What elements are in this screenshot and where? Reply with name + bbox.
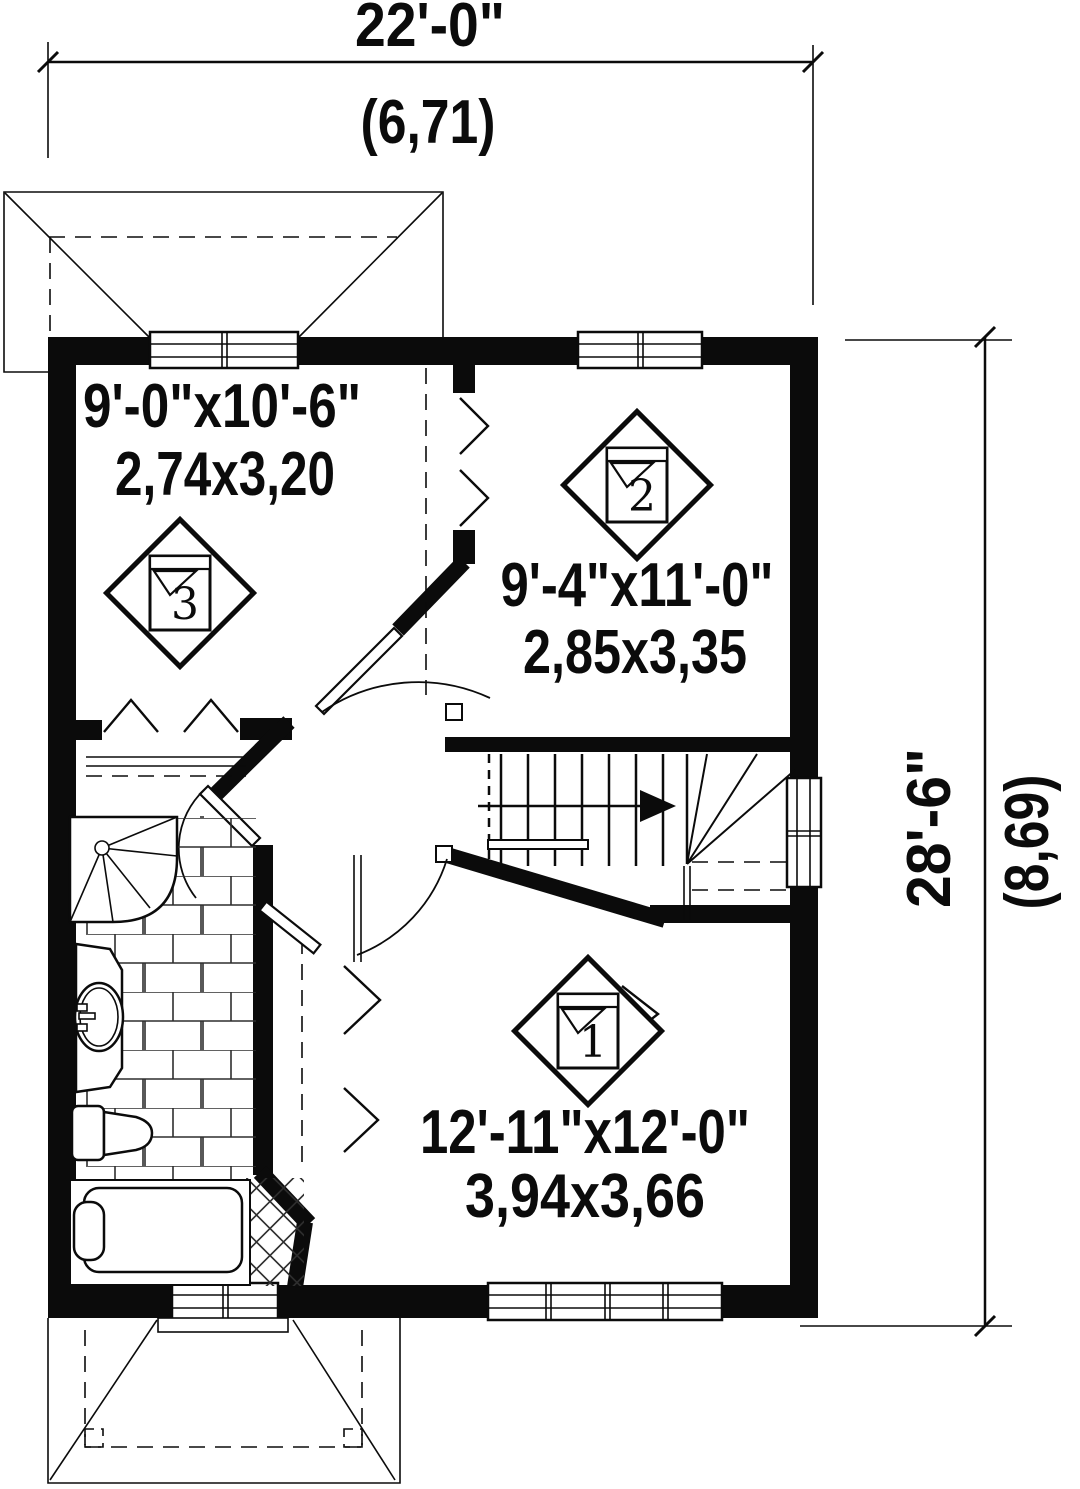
hall-closet-wall-left (76, 720, 102, 740)
stair-bottom-wall (650, 905, 790, 923)
top-dimension-imperial: 22'-0" (355, 0, 505, 60)
staircase (436, 704, 795, 920)
bedroom1-label-metric: 3,94x3,66 (465, 1162, 705, 1231)
shower (70, 817, 177, 922)
window-bedroom2 (578, 332, 702, 368)
closet-wall-stub-top (453, 365, 475, 393)
top-dimension-metric: (6,71) (361, 88, 496, 157)
porch-hip-right (293, 1320, 395, 1480)
hall-closet-chevrons (104, 700, 238, 732)
porch-hip-left (50, 1320, 157, 1480)
stair-landing-dashed (692, 862, 788, 890)
window-bedroom3 (150, 332, 298, 368)
linen-closet-chevrons (344, 966, 380, 1152)
stair-handrail (488, 840, 588, 849)
bathtub (70, 1180, 250, 1285)
bedroom2-label-metric: 2,85x3,35 (523, 618, 747, 687)
bedroom2-door-leaf (316, 628, 402, 714)
floor-plan-page: 22'-0" (6,71) 28'-6" (8,69) (0, 0, 1080, 1489)
room1-doorway-jamb (354, 855, 361, 962)
marker-page-header (607, 448, 667, 461)
stair-winder-treads (687, 754, 795, 864)
floor-plan-drawing: 22'-0" (6,71) 28'-6" (8,69) (0, 0, 1080, 1489)
marker-number: 3 (171, 579, 199, 630)
bedroom3-label-imperial: 9'-0"x10'-6" (83, 372, 361, 441)
hall-diagonal-wall-ne (398, 562, 464, 630)
porch-post-right (344, 1429, 362, 1447)
bedroom1-label-imperial: 12'-11"x12'-0" (420, 1098, 750, 1167)
right-dimension: 28'-6" (8,69) (800, 327, 1062, 1336)
right-dimension-metric: (8,69) (993, 775, 1062, 910)
marker-page-header (150, 556, 210, 569)
window-bedroom1 (488, 1283, 722, 1320)
top-dimension: 22'-0" (6,71) (38, 0, 823, 305)
room-marker-3: 3 (106, 519, 253, 666)
window-bathroom (172, 1283, 278, 1320)
porch-roof-hip-right (298, 193, 442, 338)
stair-direction-arrow (478, 790, 676, 822)
bedroom2-closet-chevrons (460, 398, 488, 526)
bedroom3-label-metric: 2,74x3,20 (115, 440, 335, 509)
right-dimension-imperial: 28'-6" (895, 748, 964, 908)
bedroom1-door-swing (357, 859, 447, 955)
lower-porch (48, 1318, 400, 1483)
marker-number: 2 (628, 471, 656, 522)
marker-number: 1 (579, 1017, 607, 1068)
stair-newel-post-bottom (436, 846, 452, 862)
tub-surround-tiles (246, 1178, 304, 1286)
porch-roof-hip-left (5, 193, 152, 340)
stair-top-wall (445, 737, 790, 752)
porch-outline (48, 1318, 400, 1483)
marker-page-header (558, 994, 618, 1007)
stair-newel-post-top (446, 704, 462, 720)
vanity-sink (75, 944, 123, 1092)
porch-post-left (85, 1429, 103, 1447)
porch-step (158, 1318, 288, 1332)
hall-closet-shelf-lines (86, 757, 246, 766)
room-marker-1: 1 (514, 957, 661, 1104)
window-stair-landing (787, 778, 821, 887)
room-marker-2: 2 (563, 411, 710, 558)
